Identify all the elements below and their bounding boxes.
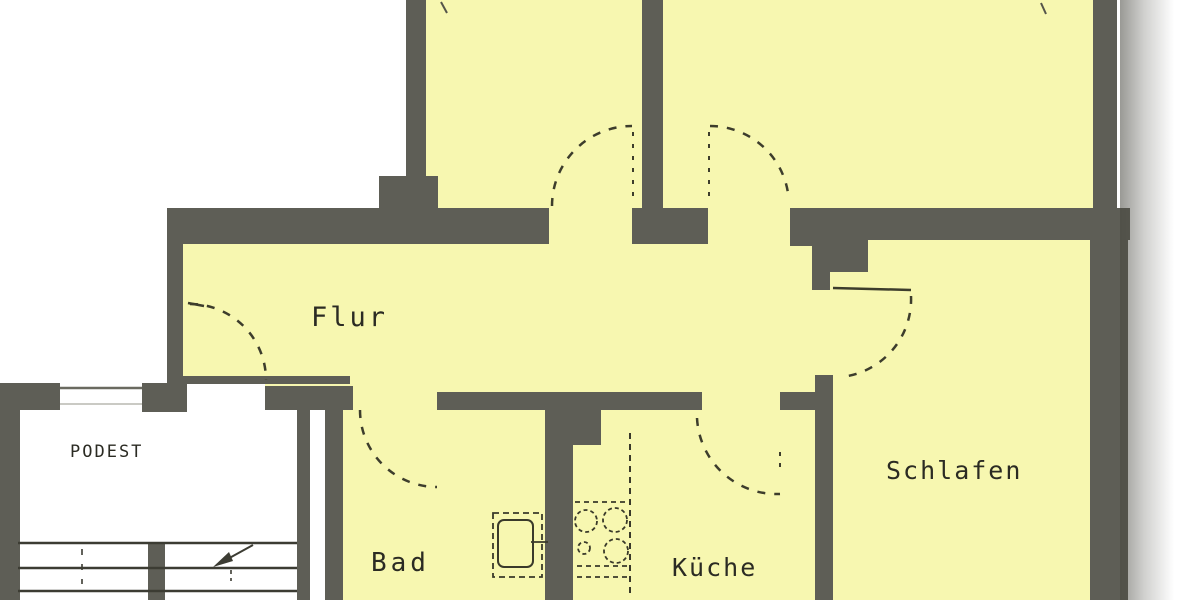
- door-leaf-schlafen: [833, 288, 911, 290]
- room-label-flur: Flur: [311, 302, 388, 333]
- top-edge-mark-right: [1041, 3, 1046, 14]
- floor-plan: Flur Schlafen Küche Bad PODEST: [0, 0, 1200, 600]
- door-swing-room-right: [710, 126, 788, 193]
- stair-direction-arrowhead: [213, 552, 233, 567]
- room-label-schlafen: Schlafen: [886, 456, 1022, 485]
- door-swing-kueche: [697, 418, 780, 494]
- door-leaf-entrance: [188, 303, 204, 306]
- kitchen-burner-2: [603, 508, 627, 532]
- top-edge-mark-left: [441, 2, 447, 13]
- kitchen-burner-4: [604, 539, 628, 563]
- kitchen-burner-3: [578, 542, 590, 554]
- bath-fixture-basin: [498, 520, 533, 567]
- room-label-kueche: Küche: [672, 553, 757, 582]
- kitchen-burner-1: [575, 510, 597, 532]
- room-label-podest: PODEST: [70, 442, 143, 462]
- door-swing-bad: [360, 410, 437, 487]
- room-label-bad: Bad: [371, 548, 430, 578]
- door-swing-entrance: [190, 304, 266, 380]
- door-swing-schlafen: [841, 296, 911, 377]
- door-swing-room-left: [552, 126, 632, 206]
- linework-layer: [0, 0, 1200, 600]
